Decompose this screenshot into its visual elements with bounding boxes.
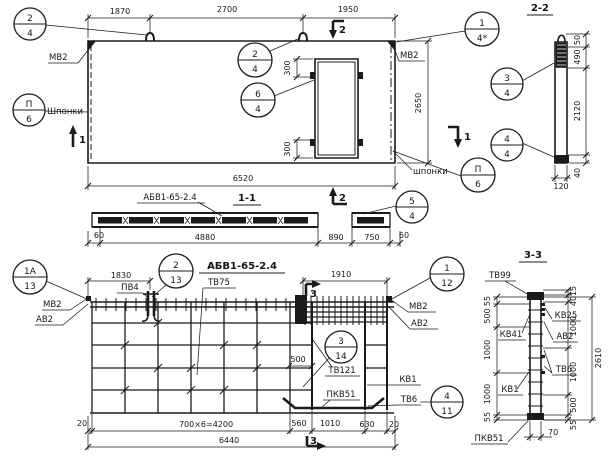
section-mark-2-bottom: 2 (339, 193, 346, 204)
embed-plate-topleft (88, 41, 96, 51)
label-tv99: ТВ99 (488, 271, 511, 281)
dim-reinf-s1: 560 (291, 419, 306, 428)
section33-title: 3-3 (524, 250, 542, 261)
label-mv2-right: МВ2 (400, 51, 419, 61)
dim-s33-width: 70 (548, 428, 558, 437)
reinf-labels: ПВ4 ТВ75 МВ2 АВ2 МВ2 АВ2 ТВ121 КВ1 ПКВ51… (35, 278, 438, 407)
dim-s33-l0: 55 (483, 296, 492, 306)
label-tv6-33: ТВ6 (555, 365, 572, 375)
dim-s22-anchor: 490 (573, 49, 582, 64)
reinforcement-view: АБВ1-65-2.4 1830 19 (35, 261, 438, 450)
dim-door-bot: 300 (283, 141, 292, 156)
label-tv75: ТВ75 (207, 278, 230, 288)
dim-plan-total: 6520 (233, 174, 253, 183)
dim-s33-l2: 1000 (483, 340, 492, 360)
callout-num: П (26, 100, 33, 110)
label-kv41: КВ41 (500, 330, 523, 340)
dim-reinf-s2: 1010 (320, 419, 340, 428)
callout-num: 3 (504, 74, 510, 84)
dim-reinf-margin-r: 20 (389, 420, 399, 429)
label-pkv51: ПКВ51 (326, 390, 355, 400)
dim-s33-r1: 40 (569, 296, 578, 306)
dim-s11-opening: 890 (328, 233, 343, 242)
dim-reinf-spacing: 700×6=4200 (179, 420, 233, 429)
door-tab (358, 139, 363, 146)
plan-top-dims: 1870 2700 1950 (85, 5, 398, 38)
section22-title: 2-2 (531, 3, 549, 14)
plan-bottom-dim: 6520 (85, 166, 398, 190)
section33-dims-right: 15 40 1000 1000 500 55 2610 (543, 286, 603, 430)
callout-reinf-4: 4 11 (431, 386, 463, 418)
label-mv2-l: МВ2 (43, 300, 62, 310)
dim-s33-l3: 1000 (483, 384, 492, 404)
dim-reinf-s3: 630 (359, 420, 374, 429)
section33-dims-left: 55 500 1000 1000 55 (483, 294, 530, 423)
callout-sheet: 4 (409, 212, 415, 222)
dim-s22-top: 50 (573, 35, 582, 45)
callout-num: 3 (338, 337, 344, 347)
lifting-loop-right (299, 33, 307, 41)
dim-plan-height: 2650 (414, 93, 423, 113)
label-av2-r: АВ2 (411, 319, 428, 329)
section-mark-1-right: 1 (464, 132, 471, 143)
drawing-canvas: 1870 2700 1950 6520 2650 300 300 МВ2 Шпо… (0, 0, 611, 465)
dim-reinf-margin-l: 20 (77, 419, 87, 428)
callout-plan-door: 6 4 (241, 83, 275, 117)
section33-width-dim: 70 (524, 421, 558, 441)
label-tv121: ТВ121 (327, 366, 355, 376)
callout-sheet: 14 (335, 352, 347, 362)
dim-plan-seg3: 1950 (338, 5, 358, 14)
callout-plan-tr: 1 4* (465, 12, 499, 46)
dim-plan-seg2: 2700 (217, 5, 237, 14)
callout-sheet: 6 (26, 115, 32, 125)
callout-sheet: 6 (475, 180, 481, 190)
callout-num: 4 (504, 135, 510, 145)
dim-s11-pier: 750 (364, 233, 379, 242)
door-opening-outer (315, 59, 358, 158)
dim-s11-body: 4880 (195, 233, 215, 242)
callout-reinf-1a: 1А 13 (13, 260, 47, 294)
callout-num: П (475, 165, 482, 175)
callout-num: 2 (252, 50, 258, 60)
callout-plan-hook: 2 4 (238, 43, 272, 77)
section-mark-1-left: 1 (79, 135, 86, 146)
dim-s11-left60: 60 (94, 231, 104, 240)
dim-s11-right60: 60 (399, 231, 409, 240)
section22-leaders (522, 63, 554, 157)
callout-reinf-1: 1 12 (430, 257, 464, 291)
plan-door-offsets: 300 300 (283, 56, 313, 161)
callout-num: 2 (27, 14, 33, 24)
dim-reinf-total: 6440 (219, 436, 239, 445)
label-av2-l: АВ2 (36, 315, 53, 325)
section22-loop (558, 35, 565, 42)
section11-cores (98, 217, 308, 224)
section22-anchor-zone (556, 43, 566, 68)
callout-num: 4 (444, 392, 450, 402)
section11-dims: 60 4880 890 750 60 (85, 228, 409, 247)
door-tab (358, 72, 363, 79)
section-1-1: 1-1 АБВ1-65-2.4 2 60 4880 890 750 60 (85, 187, 409, 247)
label-kv1-33: КВ1 (501, 385, 518, 395)
section11-title: 1-1 (238, 193, 256, 204)
dim-s33-r5: 55 (569, 420, 578, 430)
plan-section-marks: 1 1 2 (69, 21, 471, 148)
dim-s33-r4: 500 (569, 397, 578, 412)
dim-s22-body: 2120 (573, 101, 582, 121)
section-mark-3-top: 3 (310, 289, 317, 300)
pv4-element (142, 291, 160, 321)
drawing-sheet: 1870 2700 1950 6520 2650 300 300 МВ2 Шпо… (0, 0, 611, 465)
callout-reinf-3: 3 14 (325, 331, 357, 363)
callout-sheet: 4 (255, 105, 261, 115)
callout-keys-left: П 6 (13, 94, 45, 126)
dim-s33-l1: 500 (483, 308, 492, 323)
dim-s33-l4: 55 (483, 412, 492, 422)
label-kv1: КВ1 (399, 375, 416, 385)
callout-sheet: 4* (477, 34, 488, 44)
reinf-bottom-dims: 20 700×6=4200 560 1010 630 20 6440 (77, 411, 399, 450)
label-pkv51-33: ПКВ51 (474, 434, 503, 444)
callout-num: 5 (409, 197, 415, 207)
section-2-2: 2-2 50 490 2120 40 120 (522, 3, 590, 191)
callout-num: 1 (444, 264, 450, 274)
callout-sheet: 4 (504, 89, 510, 99)
callout-num: 1 (479, 19, 485, 29)
label-mv2-left: МВ2 (49, 53, 68, 63)
callout-sheet: 4 (27, 29, 33, 39)
callout-num: 6 (255, 90, 261, 100)
dim-s33-total: 2610 (594, 348, 603, 368)
dim-door-top: 300 (283, 60, 292, 75)
callout-sheet: 13 (170, 276, 181, 286)
label-pv4: ПВ4 (121, 283, 139, 293)
section33-member (527, 292, 545, 420)
callout-s22-lower: 4 4 (491, 129, 523, 161)
callout-sheet: 11 (441, 407, 452, 417)
label-keys-right: шпонки (413, 167, 448, 177)
dim-s22-width: 120 (553, 182, 568, 191)
callout-sheet: 4 (252, 65, 258, 75)
dim-s22-bottom: 40 (573, 168, 582, 178)
callout-plan-tl: 2 4 (14, 8, 46, 40)
label-av2-33: АВ2 (556, 332, 573, 342)
section-mark-3-bottom: 3 (310, 436, 317, 447)
dim-reinf-left: 1830 (111, 271, 131, 280)
dim-reinf-lintel: 1910 (331, 270, 351, 279)
callout-s11: 5 4 (396, 191, 428, 223)
section-mark-2-top: 2 (339, 25, 346, 36)
callout-s22-upper: 3 4 (491, 68, 523, 100)
section22-bottom-key (554, 155, 569, 163)
dim-plan-seg1: 1870 (110, 7, 130, 16)
label-mv2-r: МВ2 (409, 302, 428, 312)
lifting-loop-left (146, 33, 154, 41)
callout-sheet: 12 (441, 279, 452, 289)
dim-reinf-inset: 500 (290, 355, 305, 364)
callout-sheet: 13 (24, 282, 35, 292)
callout-num: 1А (24, 267, 37, 277)
callout-reinf-2: 2 13 (159, 254, 193, 288)
callout-keys-right: П 6 (461, 158, 495, 192)
label-kv25: КВ25 (555, 311, 578, 321)
callout-sheet: 4 (504, 150, 510, 160)
door-tab (310, 72, 315, 79)
door-opening-inner (318, 62, 355, 155)
callout-num: 2 (173, 261, 179, 271)
label-tv6: ТВ6 (400, 395, 417, 405)
reinf-title: АБВ1-65-2.4 (207, 261, 277, 272)
dim-s33-r0: 15 (569, 286, 578, 296)
section-3-3: 3-3 55 500 1000 1000 55 15 40 (471, 250, 603, 444)
section11-product-label: АБВ1-65-2.4 (143, 193, 196, 203)
